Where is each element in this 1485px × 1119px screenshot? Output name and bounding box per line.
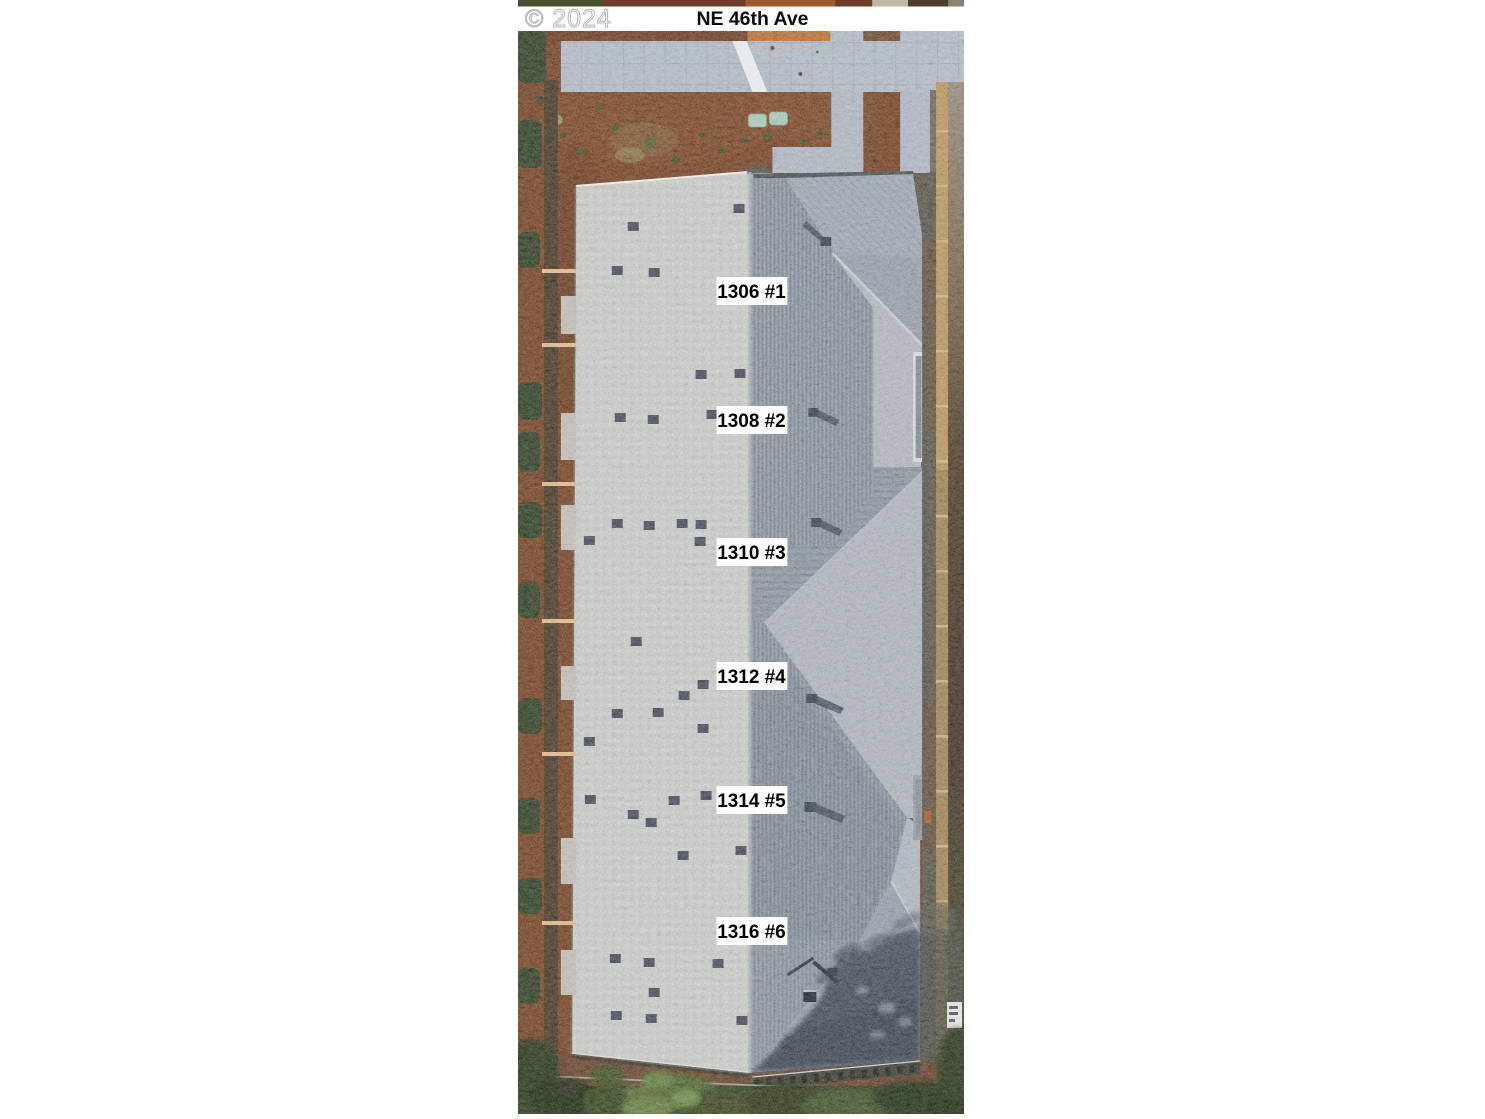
svg-text:1314 #5: 1314 #5	[717, 791, 786, 812]
svg-text:NE 46th Ave: NE 46th Ave	[696, 8, 808, 30]
svg-text:1306 #1: 1306 #1	[717, 282, 786, 303]
svg-text:1308 #2: 1308 #2	[717, 411, 786, 432]
svg-text:1316 #6: 1316 #6	[717, 922, 786, 943]
svg-text:1312 #4: 1312 #4	[717, 667, 786, 688]
svg-text:1310 #3: 1310 #3	[717, 543, 786, 564]
svg-text:© 2024: © 2024	[525, 5, 612, 33]
